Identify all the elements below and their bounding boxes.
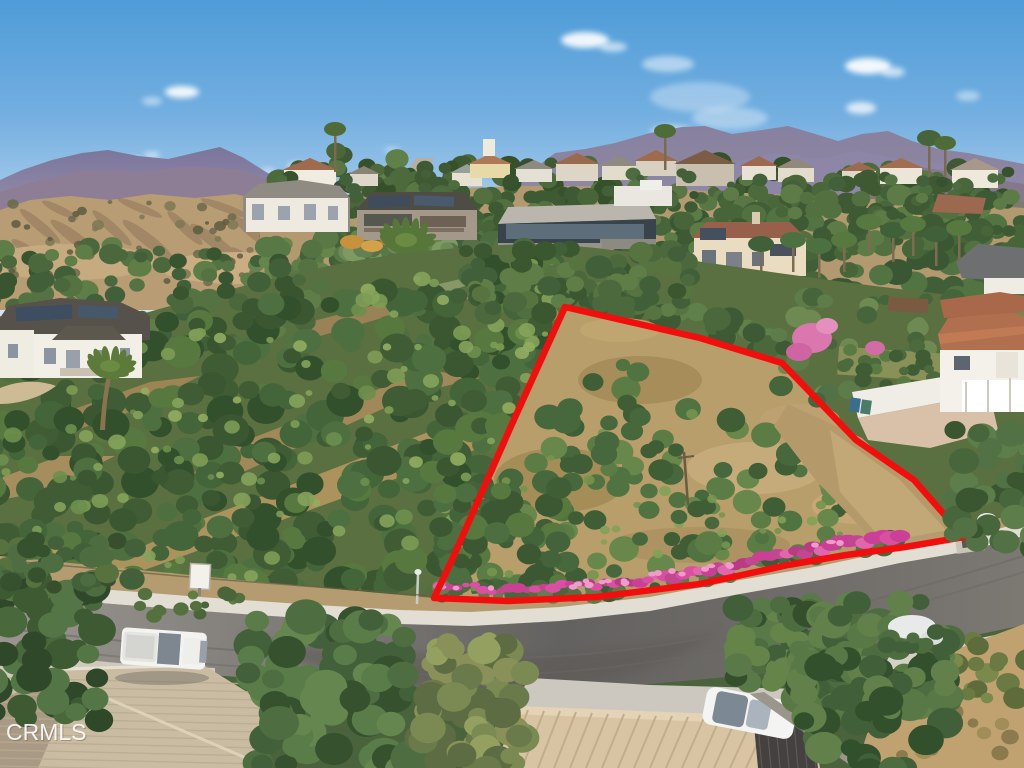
svg-text:CRMLS: CRMLS — [6, 719, 87, 745]
